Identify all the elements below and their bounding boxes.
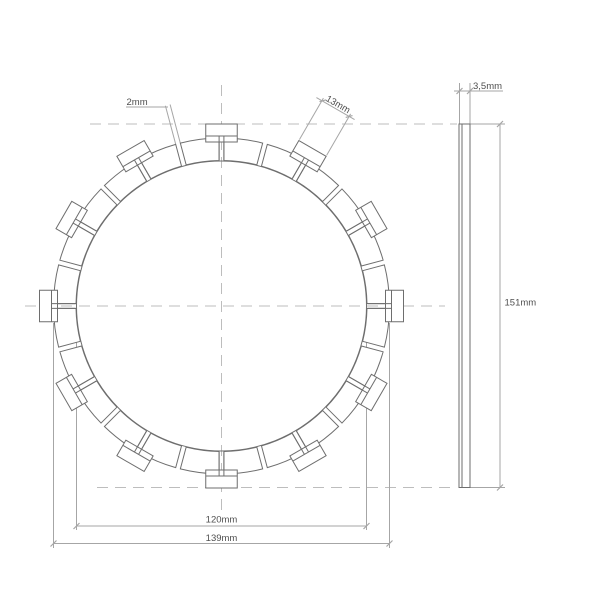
label-outer-diameter: 139mm [206, 533, 238, 544]
label-overall-diameter: 151mm [505, 298, 537, 309]
side-view-plate [459, 124, 470, 488]
drive-tab [206, 124, 238, 142]
drive-tab [206, 470, 238, 488]
label-groove-width: 2mm [127, 97, 148, 108]
ext-line-13mm-b [327, 114, 351, 155]
label-tab-width: 13mm [324, 93, 352, 116]
drive-tab [40, 290, 58, 322]
technical-drawing: 2mm 13mm 3,5mm 151mm 120mm 139mm [0, 0, 600, 600]
plate-edge-outline [459, 124, 470, 488]
label-thickness: 3,5mm [473, 81, 502, 92]
ext-line-2mm-a [165, 106, 175, 145]
label-inner-diameter: 120mm [206, 515, 238, 526]
drive-tab [386, 290, 404, 322]
drawing-canvas: 2mm 13mm 3,5mm 151mm 120mm 139mm [0, 0, 600, 600]
ext-line-13mm-a [299, 98, 323, 140]
